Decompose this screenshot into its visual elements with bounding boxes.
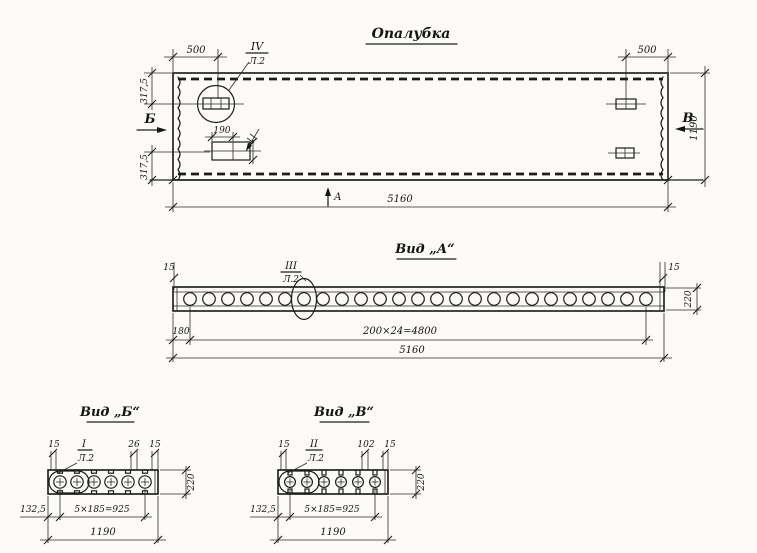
dim-1190-v: 1190 xyxy=(320,527,346,538)
dim-132-b: 132,5 xyxy=(20,505,46,515)
top-view-formwork-plan: Опалубка 500 IV Л.2 317,5 317,5 Б xyxy=(137,26,710,212)
dim-925-v: 5×185=925 xyxy=(304,505,359,515)
dim-15-left-v: 15 xyxy=(278,440,290,450)
callout-leader-IV xyxy=(229,62,249,90)
formwork-hole xyxy=(298,293,311,306)
view-b: Вид „Б“ 15 I Л.2 26 15 220 132,5 5×185=9… xyxy=(20,405,197,543)
dim-200x24: 200×24=4800 xyxy=(362,326,438,337)
formwork-hole xyxy=(260,293,273,306)
callout-sheet-II: Л.2 xyxy=(307,454,324,464)
formwork-hole xyxy=(412,293,425,306)
dim-15-left: 15 xyxy=(163,263,175,273)
callout-sheet-I: Л.2 xyxy=(77,454,94,464)
formwork-hole xyxy=(355,293,368,306)
dim-102: 102 xyxy=(357,440,374,450)
formwork-hole xyxy=(488,293,501,306)
formwork-hole xyxy=(393,293,406,306)
section-arrow-v xyxy=(675,126,685,132)
right-wavy-edge xyxy=(661,77,663,180)
section-arrow-a xyxy=(325,187,331,196)
formwork-hole xyxy=(184,293,197,306)
dim-220-view-v: 220 xyxy=(417,473,427,491)
formwork-hole xyxy=(279,293,292,306)
section-mark-a: А xyxy=(333,192,342,203)
formwork-hole xyxy=(545,293,558,306)
formwork-panel-outline xyxy=(173,73,668,180)
left-wavy-edge xyxy=(178,77,180,180)
dim-26: 26 xyxy=(127,440,140,450)
formwork-hole xyxy=(602,293,615,306)
formwork-hole xyxy=(336,293,349,306)
plate-v-holes xyxy=(285,470,381,494)
callout-num-III: III xyxy=(284,261,298,272)
formwork-hole xyxy=(469,293,482,306)
clamp-tab xyxy=(92,470,97,473)
formwork-hole xyxy=(564,293,577,306)
formwork-hole xyxy=(526,293,539,306)
callout-num-II: II xyxy=(309,439,319,450)
clamp-tab xyxy=(109,470,114,473)
formwork-hole xyxy=(640,293,653,306)
bolt-detail-left xyxy=(203,98,229,109)
view-v-title: Вид „В“ xyxy=(313,405,374,420)
formwork-hole xyxy=(583,293,596,306)
dim-15-right-b: 15 xyxy=(149,440,161,450)
view-a-title: Вид „А“ xyxy=(394,242,455,257)
clamp-tab xyxy=(92,491,97,494)
dim-220-view-b: 220 xyxy=(187,473,197,491)
dim-190: 190 xyxy=(213,126,230,136)
section-arrow-b xyxy=(157,127,167,133)
clamp-tab xyxy=(143,470,148,473)
formwork-hole xyxy=(431,293,444,306)
formwork-hole xyxy=(374,293,387,306)
dim-500-left: 500 xyxy=(186,45,206,56)
dim-180: 180 xyxy=(172,327,189,337)
blueprint-page: Опалубка 500 IV Л.2 317,5 317,5 Б xyxy=(0,0,757,553)
hole-row xyxy=(184,293,653,306)
dim-317-lower: 317,5 xyxy=(140,154,150,180)
clamp-tab xyxy=(109,491,114,494)
callout-sheet-IV: Л.2 xyxy=(248,57,265,67)
dim-15-left-b: 15 xyxy=(48,440,60,450)
dim-1190-b: 1190 xyxy=(90,527,116,538)
dim-317-upper: 317,5 xyxy=(140,78,150,104)
dim-132-v: 132,5 xyxy=(250,505,276,515)
formwork-hole xyxy=(222,293,235,306)
callout-num-IV: IV xyxy=(250,40,264,53)
dim-15-right-v: 15 xyxy=(384,440,396,450)
drawing-title: Опалубка xyxy=(372,26,451,42)
strip-outline xyxy=(173,287,664,311)
view-b-title: Вид „Б“ xyxy=(79,405,140,420)
formwork-hole xyxy=(507,293,520,306)
dim-5160-top: 5160 xyxy=(387,194,413,205)
dim-15-right: 15 xyxy=(668,263,680,273)
dim-1190-right: 1190 xyxy=(689,115,700,141)
formwork-drawing-canvas: Опалубка 500 IV Л.2 317,5 317,5 Б xyxy=(0,0,757,553)
view-v: Вид „В“ 15 II Л.2 102 15 220 132,5 5×185… xyxy=(250,405,427,543)
callout-sheet-III: Л.2 xyxy=(282,275,299,285)
section-mark-b: Б xyxy=(143,112,155,127)
view-a: Вид „А“ III Л.2 15 15 220 180 200×24=480… xyxy=(163,242,701,362)
formwork-hole xyxy=(317,293,330,306)
formwork-hole xyxy=(203,293,216,306)
formwork-hole xyxy=(450,293,463,306)
dim-5160-view-a: 5160 xyxy=(399,345,425,356)
callout-num-I: I xyxy=(81,439,87,450)
clamp-tab xyxy=(126,470,131,473)
clamp-tab xyxy=(126,491,131,494)
dim-500-right: 500 xyxy=(637,45,657,56)
formwork-hole xyxy=(241,293,254,306)
formwork-hole xyxy=(621,293,634,306)
dim-925-b: 5×185=925 xyxy=(74,505,129,515)
plate-b-holes xyxy=(54,470,151,494)
dim-220-view-a: 220 xyxy=(684,290,694,308)
